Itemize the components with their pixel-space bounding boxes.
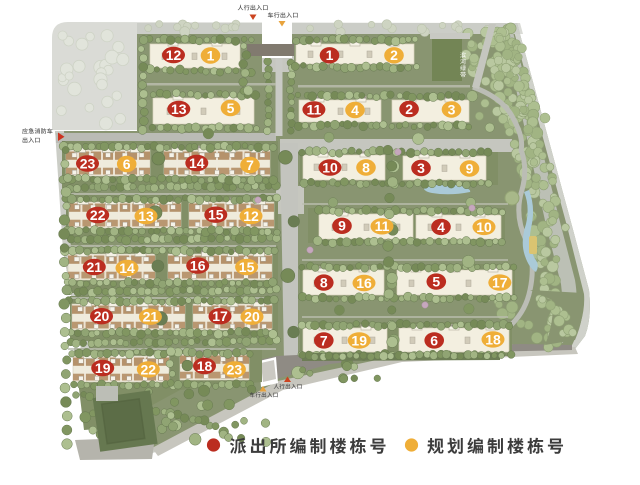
svg-text:19: 19 [95,360,111,376]
svg-text:5: 5 [227,100,235,116]
svg-text:2: 2 [405,101,413,117]
svg-text:6: 6 [123,156,131,172]
svg-text:17: 17 [212,308,228,324]
svg-text:21: 21 [143,309,159,325]
svg-text:17: 17 [492,275,508,291]
svg-text:23: 23 [80,155,96,171]
svg-text:14: 14 [119,260,135,276]
svg-text:1: 1 [326,47,334,63]
svg-text:9: 9 [338,218,346,234]
svg-text:7: 7 [320,332,328,348]
svg-text:20: 20 [94,308,110,324]
svg-text:16: 16 [356,275,372,291]
svg-text:18: 18 [485,331,501,347]
svg-text:11: 11 [375,218,390,234]
svg-text:22: 22 [90,207,106,223]
svg-text:4: 4 [437,219,445,235]
svg-text:11: 11 [306,101,321,117]
svg-text:23: 23 [227,361,243,377]
svg-text:6: 6 [430,332,438,348]
svg-text:8: 8 [362,159,370,175]
svg-text:9: 9 [466,160,474,176]
svg-text:1: 1 [207,47,215,63]
svg-text:15: 15 [239,259,255,275]
svg-text:7: 7 [246,157,254,173]
svg-text:22: 22 [141,361,157,377]
svg-text:10: 10 [476,219,492,235]
svg-text:14: 14 [189,155,205,171]
svg-text:12: 12 [243,208,259,224]
svg-text:15: 15 [208,207,224,223]
svg-text:16: 16 [190,258,206,274]
svg-text:3: 3 [448,101,456,117]
svg-text:13: 13 [171,101,187,117]
svg-text:5: 5 [432,274,440,290]
svg-text:8: 8 [320,275,328,291]
svg-text:20: 20 [244,309,260,325]
svg-text:19: 19 [351,332,367,348]
svg-text:13: 13 [138,208,154,224]
svg-text:21: 21 [87,259,103,275]
svg-text:12: 12 [166,47,182,63]
svg-text:10: 10 [322,159,338,175]
svg-text:3: 3 [417,160,425,176]
svg-text:2: 2 [390,47,398,63]
svg-text:4: 4 [351,102,359,118]
svg-text:18: 18 [197,358,213,374]
